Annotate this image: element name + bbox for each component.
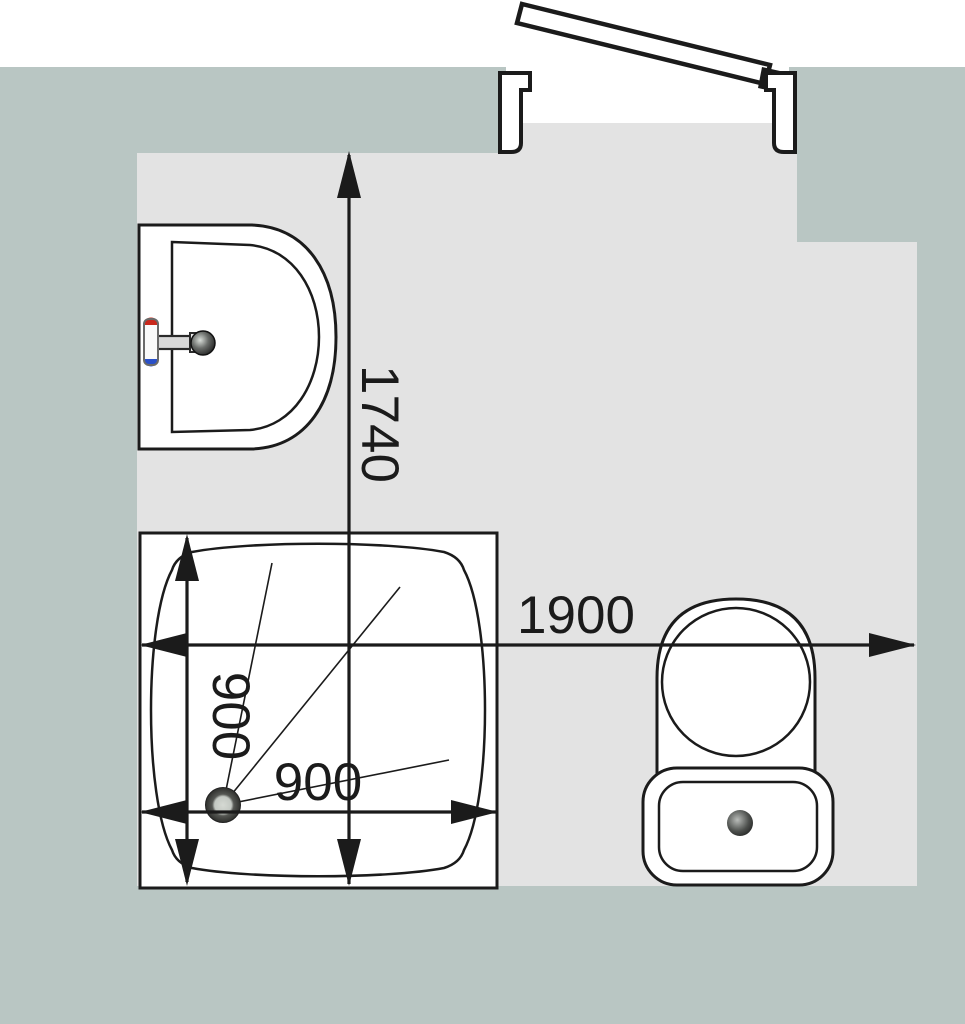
floor-plan-canvas: 1740 1900 900 900 bbox=[0, 0, 965, 1024]
toilet-seat bbox=[662, 608, 810, 756]
label-shower-width: 900 bbox=[274, 753, 362, 812]
label-room-width: 1900 bbox=[517, 586, 635, 645]
label-room-depth: 1740 bbox=[350, 365, 409, 483]
faucet-knob bbox=[191, 331, 215, 355]
label-shower-depth: 900 bbox=[201, 672, 260, 760]
shower-tray bbox=[140, 533, 497, 888]
floor-plan-drawing: 1740 1900 900 900 bbox=[0, 0, 965, 1024]
faucet-body bbox=[144, 325, 159, 359]
toilet bbox=[643, 599, 833, 885]
washbasin bbox=[139, 225, 336, 449]
door-threshold bbox=[506, 123, 789, 155]
toilet-flush-button bbox=[727, 810, 753, 836]
shower-drain bbox=[206, 788, 241, 823]
